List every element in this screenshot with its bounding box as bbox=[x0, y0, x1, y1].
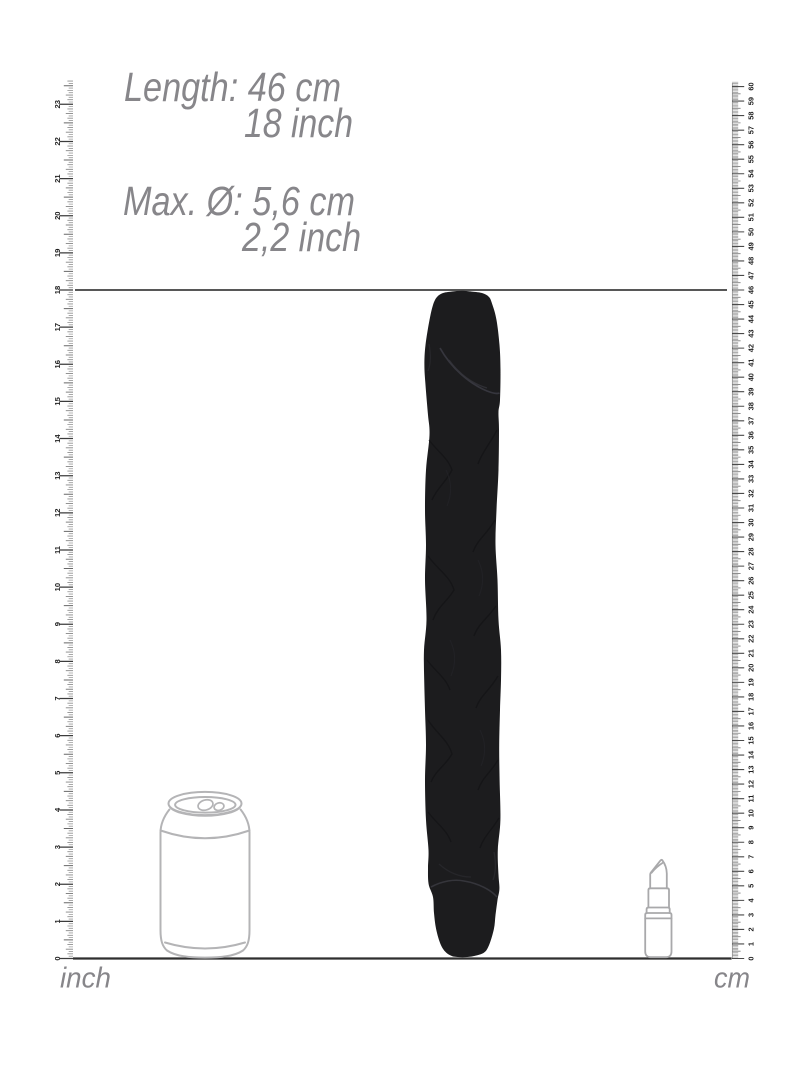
svg-text:10: 10 bbox=[746, 809, 755, 817]
svg-text:45: 45 bbox=[746, 300, 755, 308]
svg-text:12: 12 bbox=[746, 780, 755, 788]
svg-text:53: 53 bbox=[746, 184, 755, 192]
svg-text:26: 26 bbox=[746, 577, 755, 585]
svg-text:6: 6 bbox=[746, 869, 755, 873]
svg-text:8: 8 bbox=[53, 659, 62, 663]
svg-text:15: 15 bbox=[53, 396, 62, 405]
svg-text:7: 7 bbox=[746, 855, 755, 859]
svg-text:21: 21 bbox=[53, 174, 62, 183]
svg-text:19: 19 bbox=[53, 249, 62, 257]
svg-text:17: 17 bbox=[746, 707, 755, 715]
svg-text:51: 51 bbox=[746, 213, 755, 221]
svg-text:36: 36 bbox=[746, 431, 755, 439]
svg-text:48: 48 bbox=[746, 257, 755, 265]
svg-text:8: 8 bbox=[746, 840, 755, 844]
svg-text:15: 15 bbox=[746, 736, 755, 744]
svg-text:14: 14 bbox=[53, 434, 62, 443]
svg-text:25: 25 bbox=[746, 591, 755, 599]
svg-text:20: 20 bbox=[746, 664, 755, 672]
svg-text:6: 6 bbox=[53, 734, 62, 738]
svg-text:5: 5 bbox=[53, 770, 62, 775]
svg-text:2,2 inch: 2,2 inch bbox=[241, 214, 361, 260]
svg-text:32: 32 bbox=[746, 489, 755, 497]
svg-text:29: 29 bbox=[746, 533, 755, 541]
svg-text:28: 28 bbox=[746, 547, 755, 555]
svg-text:50: 50 bbox=[746, 228, 755, 236]
svg-text:18: 18 bbox=[746, 693, 755, 701]
svg-text:cm: cm bbox=[714, 963, 750, 995]
svg-text:59: 59 bbox=[746, 97, 755, 105]
svg-text:30: 30 bbox=[746, 518, 755, 526]
svg-text:19: 19 bbox=[746, 678, 755, 686]
svg-text:13: 13 bbox=[746, 765, 755, 773]
svg-text:39: 39 bbox=[746, 388, 755, 396]
svg-text:12: 12 bbox=[53, 509, 62, 517]
svg-text:52: 52 bbox=[746, 199, 755, 207]
svg-text:49: 49 bbox=[746, 242, 755, 250]
svg-text:56: 56 bbox=[746, 141, 755, 149]
svg-text:31: 31 bbox=[746, 504, 755, 512]
svg-text:24: 24 bbox=[746, 605, 755, 614]
svg-text:1: 1 bbox=[746, 942, 755, 946]
svg-text:1: 1 bbox=[53, 919, 62, 924]
svg-text:17: 17 bbox=[53, 323, 62, 331]
svg-text:18: 18 bbox=[53, 286, 62, 294]
svg-text:40: 40 bbox=[746, 373, 755, 381]
svg-text:7: 7 bbox=[53, 696, 62, 700]
svg-text:9: 9 bbox=[53, 622, 62, 626]
svg-text:38: 38 bbox=[746, 402, 755, 410]
svg-text:44: 44 bbox=[746, 314, 755, 323]
svg-text:20: 20 bbox=[53, 211, 62, 219]
svg-text:10: 10 bbox=[53, 583, 62, 591]
svg-text:9: 9 bbox=[746, 826, 755, 830]
svg-text:4: 4 bbox=[746, 897, 755, 902]
svg-text:18 inch: 18 inch bbox=[244, 100, 353, 146]
svg-text:42: 42 bbox=[746, 344, 755, 352]
svg-text:27: 27 bbox=[746, 562, 755, 570]
svg-text:2: 2 bbox=[746, 927, 755, 931]
svg-text:13: 13 bbox=[53, 471, 62, 479]
svg-text:23: 23 bbox=[53, 100, 62, 108]
svg-text:4: 4 bbox=[53, 807, 62, 812]
svg-text:58: 58 bbox=[746, 111, 755, 119]
svg-text:23: 23 bbox=[746, 620, 755, 628]
svg-text:33: 33 bbox=[746, 475, 755, 483]
svg-text:47: 47 bbox=[746, 271, 755, 279]
svg-text:5: 5 bbox=[746, 884, 755, 888]
svg-text:3: 3 bbox=[746, 913, 755, 917]
svg-text:inch: inch bbox=[60, 963, 111, 995]
svg-text:46: 46 bbox=[746, 286, 755, 294]
svg-text:0: 0 bbox=[746, 956, 755, 960]
svg-text:22: 22 bbox=[746, 635, 755, 643]
svg-text:35: 35 bbox=[746, 446, 755, 454]
svg-text:2: 2 bbox=[53, 882, 62, 886]
svg-text:37: 37 bbox=[746, 417, 755, 425]
svg-text:11: 11 bbox=[53, 545, 62, 554]
svg-text:60: 60 bbox=[746, 82, 755, 90]
svg-text:57: 57 bbox=[746, 126, 755, 134]
svg-text:22: 22 bbox=[53, 137, 62, 145]
svg-text:54: 54 bbox=[746, 169, 755, 178]
svg-text:43: 43 bbox=[746, 329, 755, 337]
svg-text:41: 41 bbox=[746, 359, 755, 367]
svg-text:34: 34 bbox=[746, 459, 755, 468]
svg-text:11: 11 bbox=[746, 795, 755, 803]
svg-text:21: 21 bbox=[746, 649, 755, 657]
svg-text:0: 0 bbox=[53, 956, 62, 960]
svg-text:55: 55 bbox=[746, 155, 755, 163]
svg-text:14: 14 bbox=[746, 750, 755, 759]
svg-text:3: 3 bbox=[53, 845, 62, 849]
svg-text:16: 16 bbox=[746, 722, 755, 730]
svg-text:16: 16 bbox=[53, 360, 62, 368]
